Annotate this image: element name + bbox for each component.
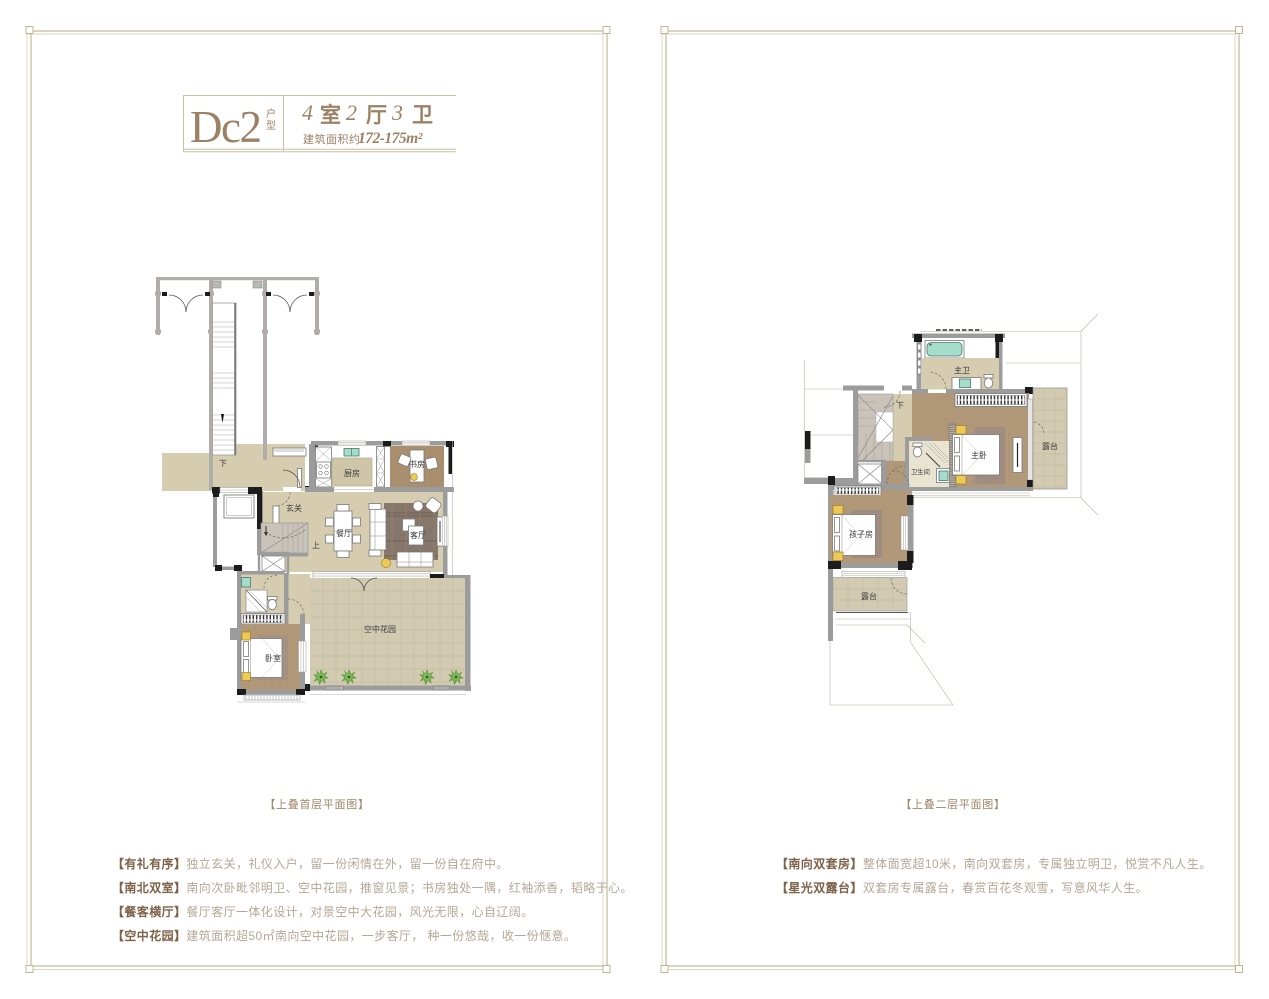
svg-text:孩子房: 孩子房 — [849, 529, 873, 539]
svg-text:【餐客横厅】餐厅客厅一体化设计，对景空中大花园，风光无限，心: 【餐客横厅】餐厅客厅一体化设计，对景空中大花园，风光无限，心自辽阔。 — [112, 904, 534, 919]
svg-text:户: 户 — [266, 107, 276, 120]
svg-text:【上叠首层平面图】: 【上叠首层平面图】 — [264, 797, 369, 811]
svg-text:书房: 书房 — [409, 459, 425, 469]
svg-text:建筑面积约:: 建筑面积约: — [303, 132, 364, 146]
svg-text:主卫: 主卫 — [954, 365, 970, 375]
svg-text:上: 上 — [312, 541, 320, 550]
svg-text:厨房: 厨房 — [344, 468, 360, 478]
svg-text:423: 423 — [302, 100, 403, 125]
svg-text:【空中花园】建筑面积超50㎡南向空中花园，一步客厅， 种一份: 【空中花园】建筑面积超50㎡南向空中花园，一步客厅， 种一份悠哉，收一份惬意。 — [112, 928, 576, 943]
svg-text:172-175m²: 172-175m² — [358, 130, 423, 147]
svg-text:【上叠二层平面图】: 【上叠二层平面图】 — [900, 798, 1005, 811]
svg-text:【有礼有序】独立玄关，礼仪入户，留一份闲情在外，留一份自在府: 【有礼有序】独立玄关，礼仪入户，留一份闲情在外，留一份自在府中。 — [112, 856, 509, 871]
svg-text:餐厅: 餐厅 — [336, 529, 352, 538]
svg-text:露台: 露台 — [1042, 441, 1058, 451]
svg-text:室厅卫: 室厅卫 — [320, 103, 433, 127]
svg-text:客厅: 客厅 — [410, 530, 426, 540]
svg-text:【南向双套房】整体面宽超10米，南向双套房，专属独立明卫，悦: 【南向双套房】整体面宽超10米，南向双套房，专属独立明卫，悦赏不凡人生。 — [776, 856, 1212, 871]
svg-text:玄关: 玄关 — [286, 503, 302, 513]
svg-text:卧室: 卧室 — [265, 653, 281, 663]
svg-text:型: 型 — [266, 119, 276, 132]
svg-text:空中花园: 空中花园 — [364, 624, 396, 634]
svg-text:露台: 露台 — [861, 591, 877, 601]
svg-text:下: 下 — [219, 459, 227, 468]
svg-text:卫生间: 卫生间 — [911, 467, 930, 476]
svg-text:【星光双露台】双套房专属露台，春赏百花冬观雪，写意风华人生。: 【星光双露台】双套房专属露台，春赏百花冬观雪，写意风华人生。 — [776, 880, 1148, 895]
svg-text:【南北双室】南向次卧毗邻明卫、空中花园，推窗见景；书房独处一: 【南北双室】南向次卧毗邻明卫、空中花园，推窗见景；书房独处一隅，红袖添香，韬略于… — [112, 880, 633, 895]
svg-text:主卧: 主卧 — [971, 450, 987, 460]
svg-text:Dc2: Dc2 — [190, 102, 260, 152]
svg-text:下: 下 — [896, 401, 904, 410]
